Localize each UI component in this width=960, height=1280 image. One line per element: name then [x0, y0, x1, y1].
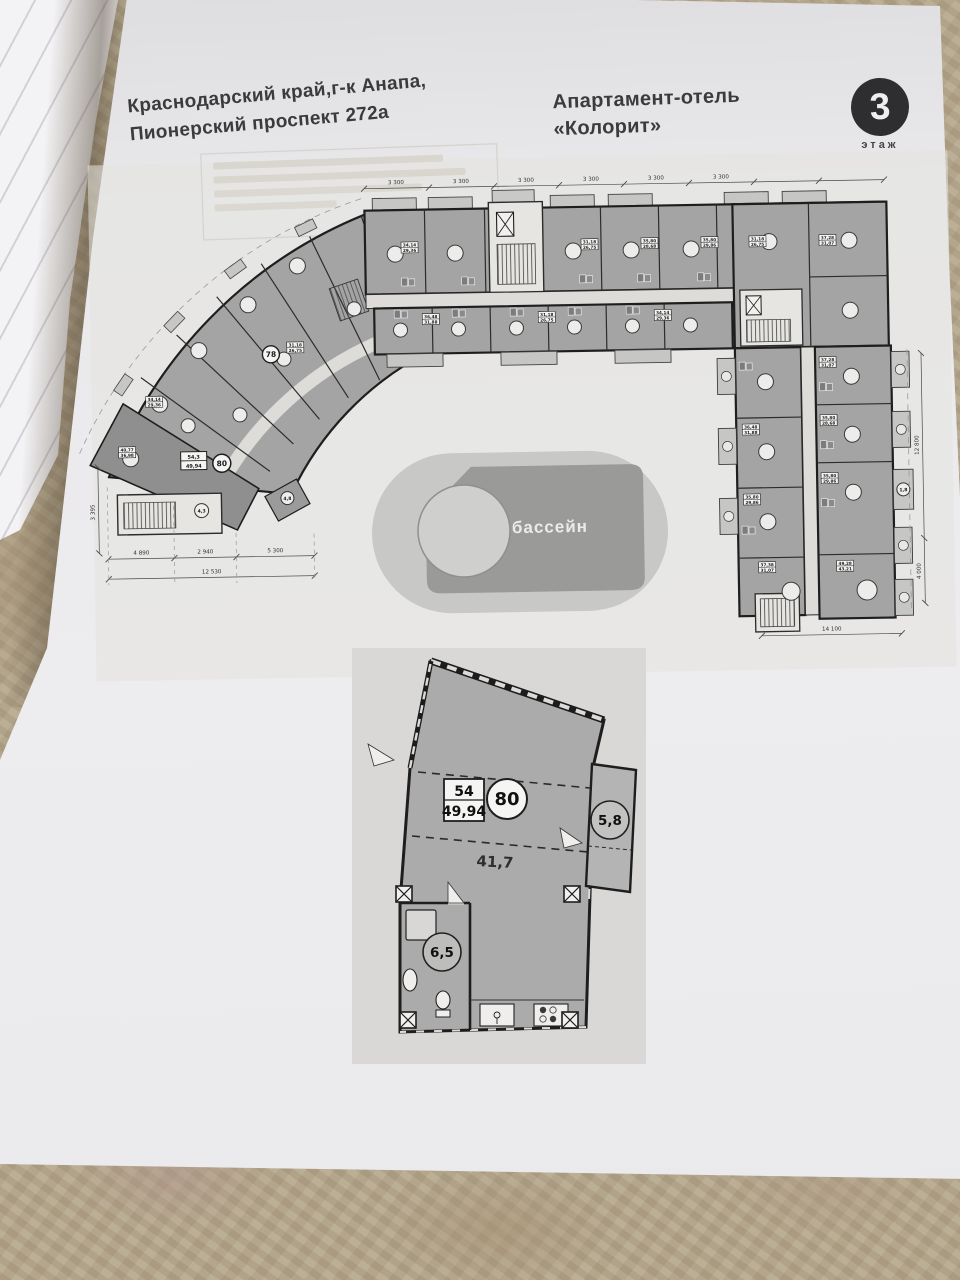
- unit-80-callout: 80: [217, 459, 228, 468]
- svg-text:3 300: 3 300: [583, 177, 600, 183]
- svg-text:40,77: 40,77: [120, 447, 133, 452]
- svg-text:28,68: 28,68: [643, 244, 656, 249]
- svg-text:3 300: 3 300: [453, 179, 470, 185]
- svg-text:31,18: 31,18: [583, 239, 596, 244]
- svg-text:29,36: 29,36: [656, 315, 669, 320]
- small-room-circle: 4,8: [283, 496, 291, 502]
- svg-text:26,75: 26,75: [289, 348, 302, 353]
- svg-text:36,98: 36,98: [120, 453, 133, 458]
- svg-text:12 800: 12 800: [914, 435, 920, 455]
- svg-text:28,68: 28,68: [822, 420, 835, 425]
- svg-text:54,3: 54,3: [187, 455, 200, 461]
- svg-text:49,94: 49,94: [186, 464, 202, 470]
- svg-text:3 300: 3 300: [648, 175, 665, 181]
- entrance-stairs: 4,3: [117, 493, 222, 535]
- balcony-area-circle: 1,8: [899, 487, 907, 493]
- svg-text:4 890: 4 890: [133, 550, 150, 556]
- svg-text:34,14: 34,14: [656, 310, 669, 315]
- unit-detail-plan: 5,8 6,5: [352, 648, 646, 1064]
- svg-text:3 300: 3 300: [713, 174, 730, 180]
- svg-text:4 000: 4 000: [917, 563, 923, 580]
- svg-text:31,88: 31,88: [744, 430, 757, 435]
- svg-text:31,18: 31,18: [540, 312, 553, 317]
- svg-text:35,80: 35,80: [822, 415, 835, 420]
- svg-text:5 300: 5 300: [267, 548, 284, 554]
- balcony-area: 5,8: [598, 813, 622, 829]
- svg-text:37,38: 37,38: [760, 562, 773, 567]
- svg-text:31,18: 31,18: [289, 342, 302, 347]
- detail-balcony: 5,8: [586, 764, 636, 892]
- svg-text:3 300: 3 300: [518, 178, 535, 184]
- corner-stair-core: [740, 289, 803, 346]
- svg-text:35,80: 35,80: [823, 473, 836, 478]
- svg-text:26,75: 26,75: [540, 317, 553, 322]
- svg-text:29,86: 29,86: [703, 243, 716, 248]
- pool-label: бассейн: [512, 517, 588, 537]
- bathroom-area: 6,5: [430, 945, 454, 961]
- svg-text:49,28: 49,28: [838, 561, 851, 566]
- main-floor-plan: 4,3 4,8 78 80: [74, 136, 956, 682]
- top-wing-lower-row: [374, 302, 733, 354]
- svg-text:29,86: 29,86: [745, 500, 758, 505]
- svg-text:26,75: 26,75: [583, 245, 596, 250]
- svg-text:31,88: 31,88: [424, 319, 437, 324]
- svg-text:12 530: 12 530: [202, 569, 222, 575]
- svg-text:43,21: 43,21: [839, 566, 852, 571]
- unit-number: 80: [494, 789, 519, 810]
- svg-text:29,86: 29,86: [823, 478, 836, 483]
- svg-text:34,14: 34,14: [148, 397, 161, 402]
- svg-text:35,80: 35,80: [745, 494, 758, 499]
- elevator-stair-core: [488, 190, 544, 293]
- svg-text:37,28: 37,28: [821, 235, 834, 240]
- svg-text:34,14: 34,14: [403, 242, 416, 247]
- detail-area-box: 54 49,94: [442, 779, 487, 821]
- entry-area-circle: 4,3: [198, 509, 206, 515]
- svg-text:3 300: 3 300: [388, 180, 405, 186]
- unit-total-area: 49,94: [442, 804, 487, 820]
- unit-number-small: 54: [454, 784, 474, 800]
- svg-text:31,07: 31,07: [821, 363, 834, 368]
- svg-text:31,07: 31,07: [761, 568, 774, 573]
- pool-circle: [417, 484, 511, 578]
- photo-of-floor-plan-page: Краснодарский край,г-к Анапа, Пионерский…: [0, 0, 960, 1280]
- svg-text:14 100: 14 100: [822, 626, 842, 632]
- svg-text:29,36: 29,36: [148, 402, 161, 407]
- living-area: 41,7: [476, 852, 514, 872]
- pool: бассейн: [371, 449, 670, 614]
- svg-text:3 395: 3 395: [90, 504, 96, 521]
- svg-text:35,80: 35,80: [643, 238, 656, 243]
- svg-text:2 940: 2 940: [197, 549, 214, 555]
- svg-text:31,07: 31,07: [821, 240, 834, 245]
- svg-text:37,28: 37,28: [821, 357, 834, 362]
- washbasin: [403, 969, 417, 991]
- svg-text:36,48: 36,48: [744, 424, 757, 429]
- svg-text:36,48: 36,48: [424, 314, 437, 319]
- svg-text:31,18: 31,18: [751, 236, 764, 241]
- floor-plan-drawing: 4,3 4,8 78 80: [0, 0, 960, 1280]
- svg-text:29,36: 29,36: [403, 248, 416, 253]
- right-wing: 1,8: [714, 201, 915, 632]
- toilet: [436, 991, 450, 1009]
- unit-78-callout: 78: [266, 350, 277, 359]
- unit-80-area-box: 54,3 49,94: [181, 451, 207, 469]
- svg-text:26,75: 26,75: [751, 242, 764, 247]
- svg-text:35,80: 35,80: [703, 237, 716, 242]
- unit-outline: [400, 661, 604, 1032]
